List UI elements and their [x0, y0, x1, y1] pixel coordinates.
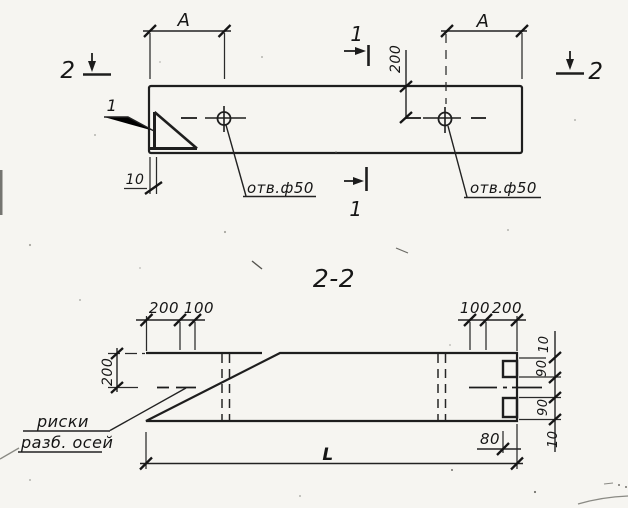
section-mark-2-right: 2 [556, 51, 604, 85]
hole-label-right: отв.ф50 [470, 179, 537, 197]
dims-top-left-group: 200 100 [136, 299, 214, 351]
dim-200-plan-group: 200 [388, 45, 412, 123]
dim-topleft-100: 100 [184, 299, 214, 317]
section-mark-1-top: 1 [344, 22, 369, 66]
dim-right-90-bottom: 90 [536, 398, 551, 416]
section-mark-2-left-label: 2 [60, 58, 75, 84]
section-beam-outline [146, 353, 517, 421]
technical-drawing: А А 200 10 [0, 0, 628, 508]
section-mark-2-right-label: 2 [588, 59, 603, 85]
section-view: 2-2 [18, 264, 561, 470]
section-title: 2-2 [313, 264, 355, 293]
dim-80-label: 80 [480, 430, 500, 448]
dim-length-group: L [140, 424, 523, 470]
axis-note-line1: риски [36, 412, 89, 431]
dim-length-label: L [322, 445, 333, 465]
notch-lower [503, 398, 517, 417]
dim-200-plan-label: 200 [388, 45, 404, 73]
dim-10-plan-label: 10 [126, 172, 145, 188]
plan-view: А А 200 10 [60, 10, 603, 221]
hidden-hole-left [222, 354, 230, 420]
plan-beam-outline [149, 86, 522, 153]
notch-upper [503, 361, 517, 377]
dim-200-section-left-group: 200 [100, 348, 145, 393]
dim-topright-200: 200 [492, 299, 522, 317]
section-mark-1-top-label: 1 [350, 22, 363, 46]
section-mark-2-left: 2 [60, 53, 111, 84]
hole-right [406, 107, 486, 133]
axis-note-line2: разб. осей [20, 433, 113, 452]
dim-topright-100: 100 [460, 299, 490, 317]
hole-left [181, 106, 246, 132]
dim-right-10-top: 10 [537, 335, 552, 353]
callout-1: 1 [104, 96, 154, 131]
dim-a-right-group: А [441, 11, 528, 104]
dim-topleft-200: 200 [149, 299, 179, 317]
dims-right-chain-group: 10 90 90 10 [519, 331, 561, 452]
dims-top-right-group: 100 200 [458, 299, 526, 351]
dim-right-10-bottom: 10 [546, 430, 561, 448]
dim-a-left-label: А [177, 10, 191, 31]
section-mark-1-bottom: 1 [344, 167, 367, 221]
drawing-sheet: А А 200 10 [0, 0, 628, 508]
hole-label-right-group: отв.ф50 [448, 126, 541, 198]
dim-10-plan-group: 10 [124, 157, 162, 194]
dim-right-90-top: 90 [535, 359, 550, 377]
dim-a-left-group: А [143, 10, 231, 79]
hidden-hole-right [438, 354, 446, 420]
dim-80-group: 80 [477, 430, 521, 455]
callout-1-label: 1 [107, 96, 118, 115]
dim-a-right-label: А [476, 11, 490, 32]
hole-label-left: отв.ф50 [247, 179, 314, 197]
section-mark-1-bottom-label: 1 [349, 197, 362, 221]
dim-200-section-left-label: 200 [100, 358, 116, 386]
hole-label-left-group: отв.ф50 [226, 125, 316, 197]
